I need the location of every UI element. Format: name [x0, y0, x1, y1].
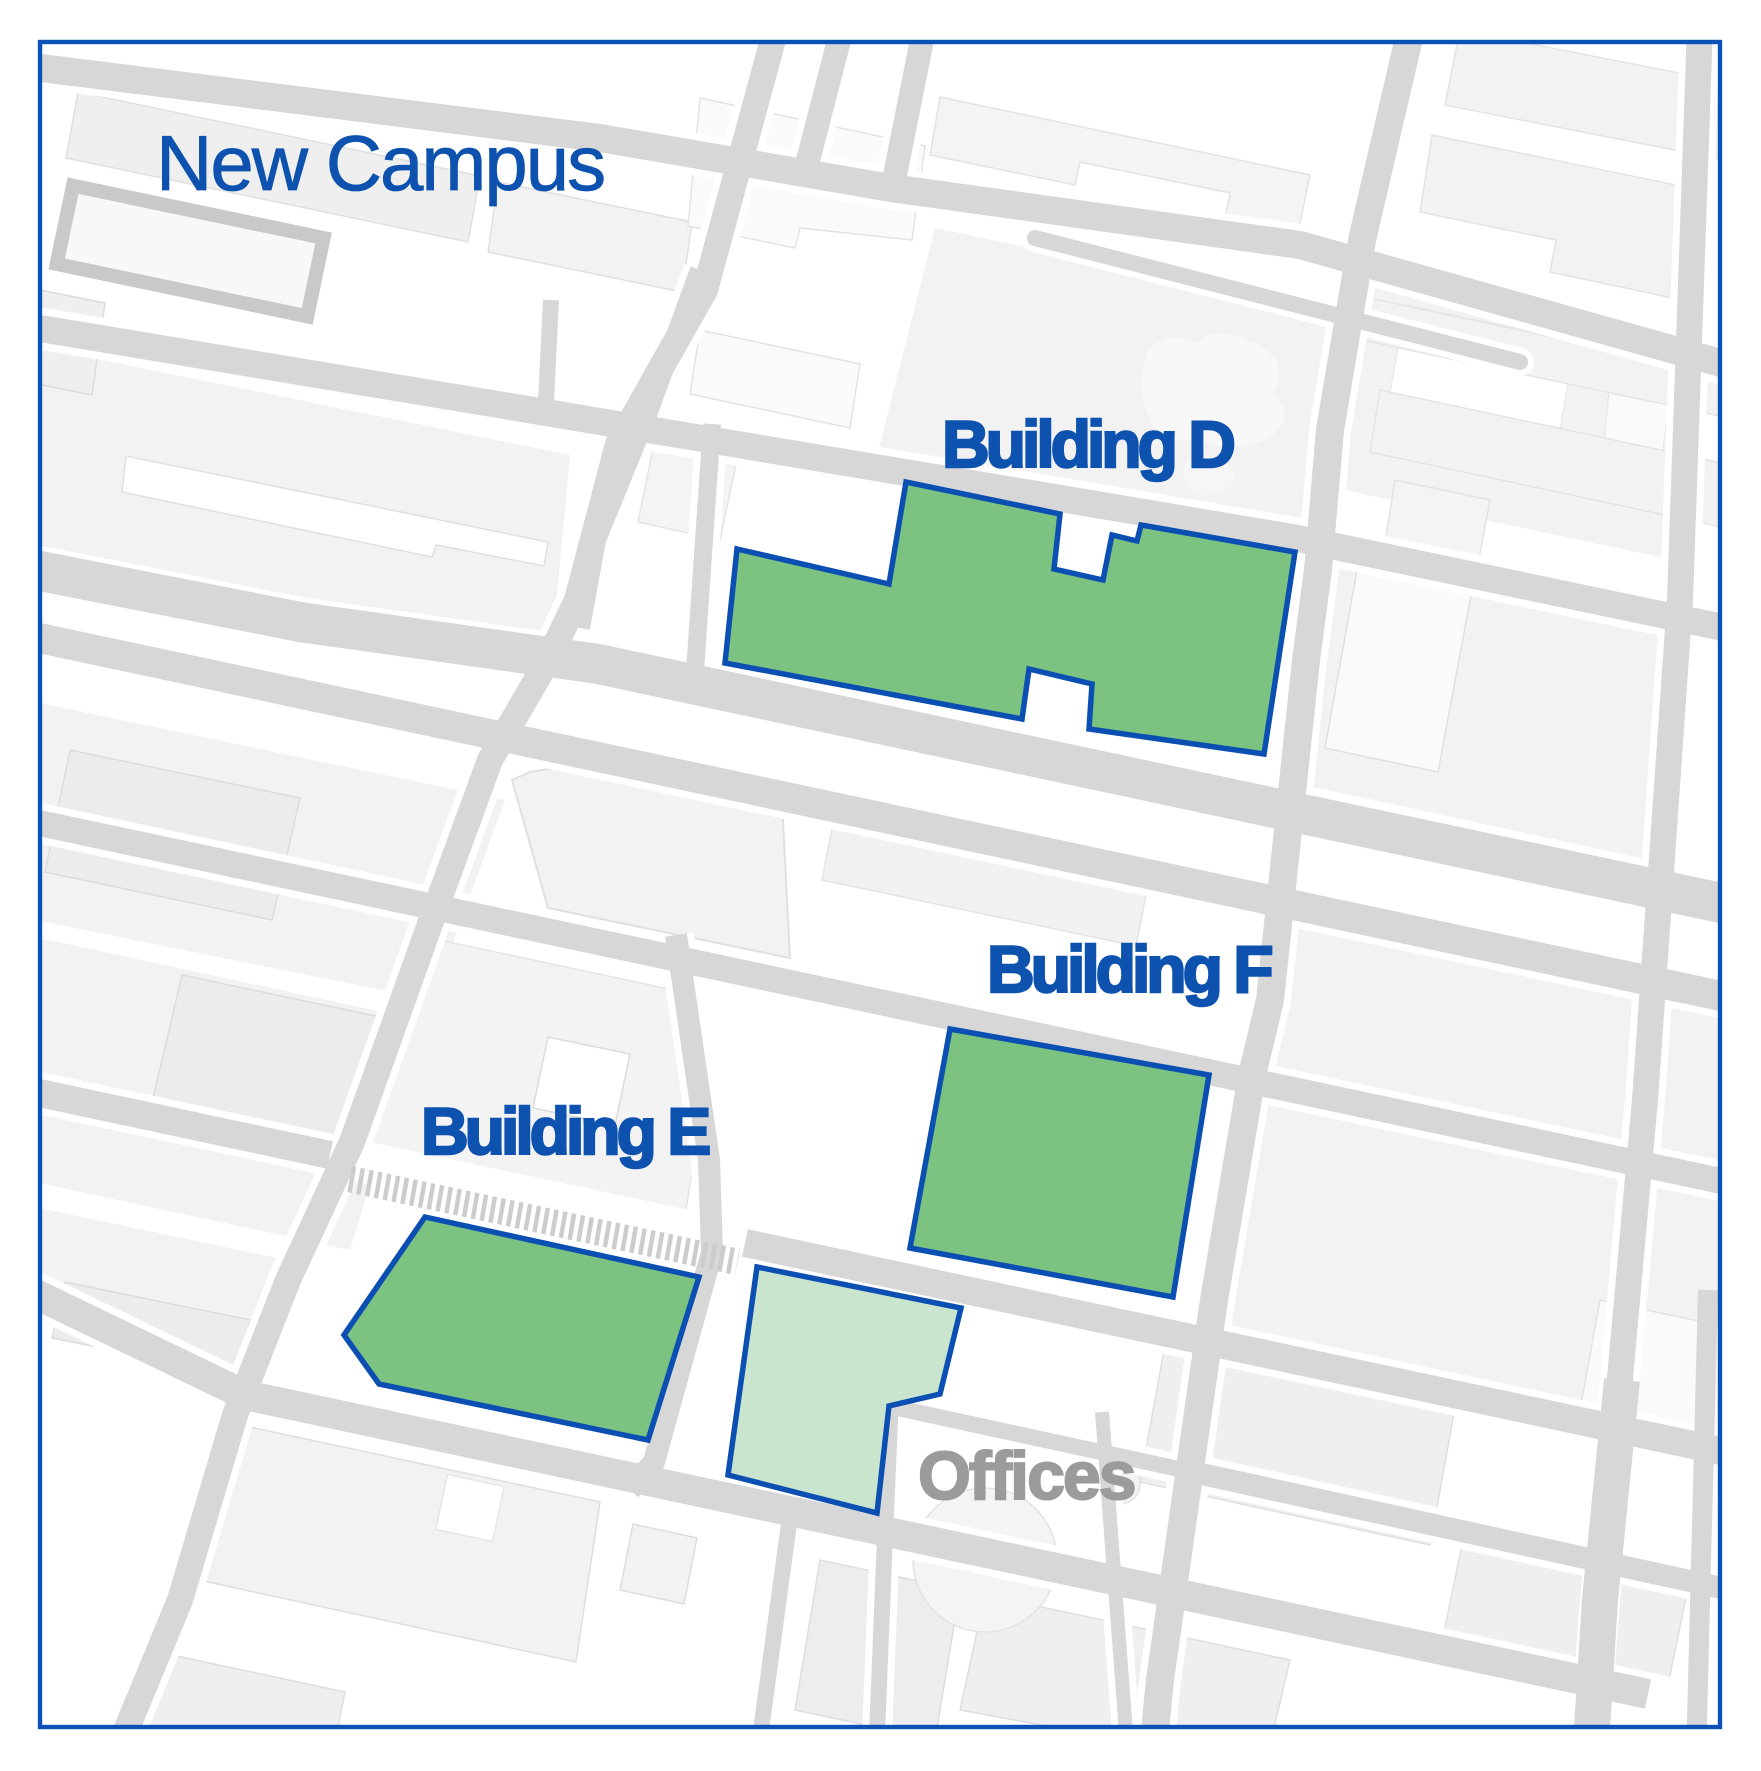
- svg-text:Building E: Building E: [421, 1094, 709, 1168]
- svg-text:Offices: Offices: [918, 1438, 1135, 1514]
- svg-text:Building D: Building D: [942, 407, 1233, 481]
- svg-text:Building F: Building F: [987, 932, 1271, 1006]
- svg-text:New Campus: New Campus: [156, 119, 604, 207]
